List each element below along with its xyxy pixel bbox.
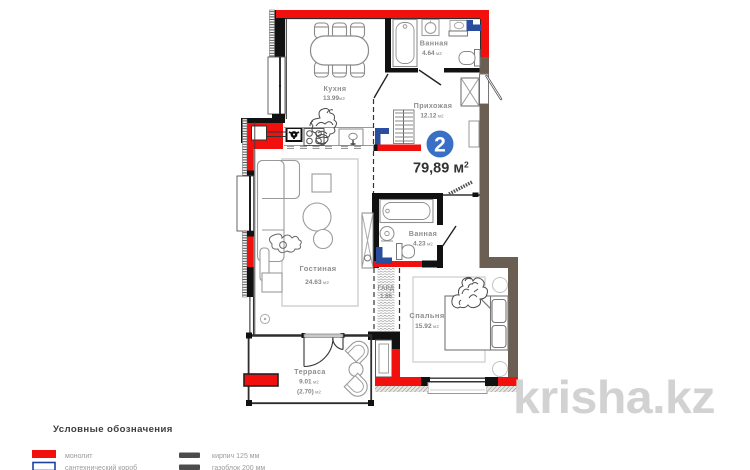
svg-text:кирпич 125 мм: кирпич 125 мм	[212, 453, 260, 460]
svg-text:ГАРД: ГАРД	[378, 286, 395, 292]
svg-text:монолит: монолит	[65, 453, 93, 460]
svg-text:13.99м2: 13.99м2	[323, 95, 345, 102]
svg-text:Условные обозначения: Условные обозначения	[53, 424, 173, 435]
svg-text:4.64 м2: 4.64 м2	[422, 50, 442, 57]
svg-text:4.23 м2: 4.23 м2	[413, 241, 433, 248]
svg-text:1.66: 1.66	[380, 294, 392, 300]
svg-text:Кухня: Кухня	[323, 84, 346, 93]
svg-text:газоблок 200 мм: газоблок 200 мм	[212, 464, 265, 470]
svg-text:Ванная: Ванная	[420, 39, 448, 48]
svg-text:Прихожая: Прихожая	[414, 101, 453, 110]
svg-text:79,89 м2: 79,89 м2	[413, 160, 469, 177]
svg-text:Терраса: Терраса	[294, 367, 326, 376]
svg-text:Спальня: Спальня	[409, 311, 444, 320]
svg-text:(2.70) м2: (2.70) м2	[297, 389, 321, 396]
svg-text:Ванная: Ванная	[409, 229, 437, 238]
svg-text:12.12 м2: 12.12 м2	[420, 113, 444, 120]
svg-text:15.92 м2: 15.92 м2	[415, 323, 439, 330]
svg-text:24.63 м2: 24.63 м2	[305, 279, 329, 286]
svg-text:9.01 м2: 9.01 м2	[299, 379, 319, 386]
svg-text:2: 2	[434, 134, 446, 157]
svg-text:сантехнический короб: сантехнический короб	[65, 464, 137, 470]
svg-text:Гостиная: Гостиная	[299, 264, 336, 273]
svg-text:krisha.kz: krisha.kz	[513, 371, 715, 423]
